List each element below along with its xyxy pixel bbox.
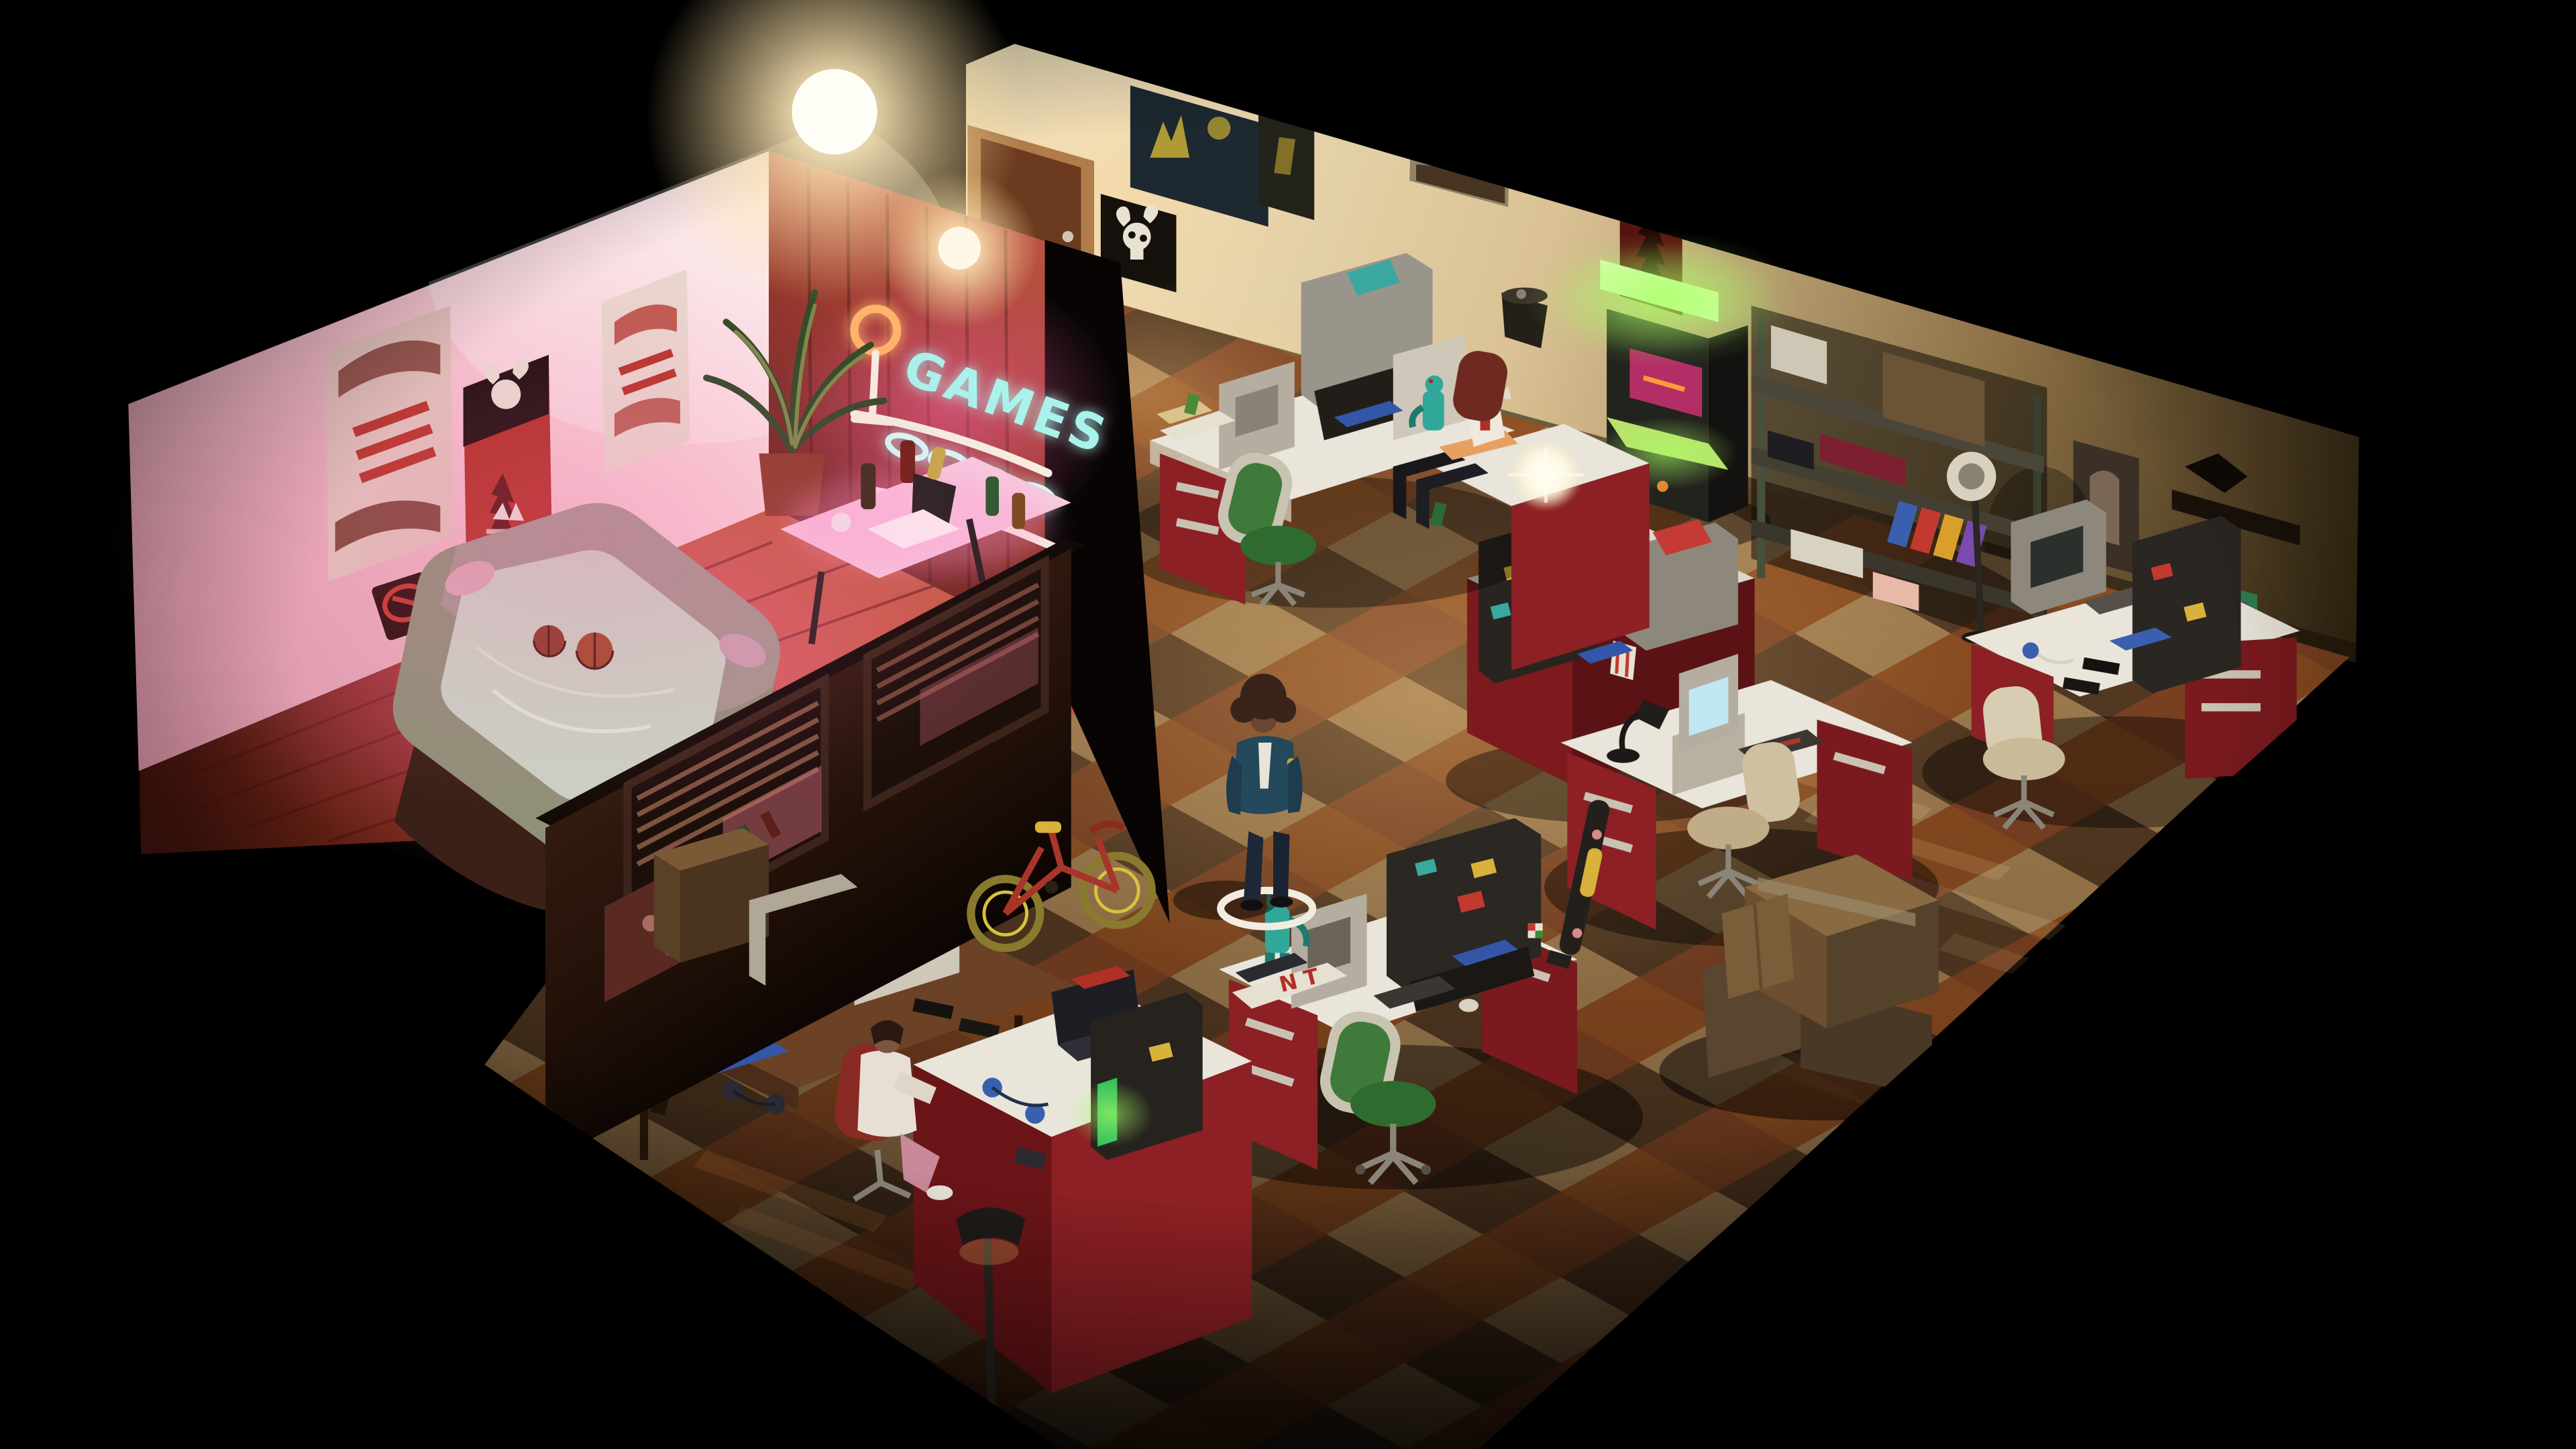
scene-canvas: N T GAME OVER	[0, 0, 2576, 1449]
arcade-bloom	[1523, 230, 1802, 368]
pink-room-bloom	[99, 263, 1084, 822]
lighting-bloom	[0, 0, 2576, 1449]
lamp-glare-bloom	[1519, 449, 1572, 501]
wall-sconce-bulb	[938, 227, 981, 270]
ceiling-light-core	[792, 69, 877, 154]
